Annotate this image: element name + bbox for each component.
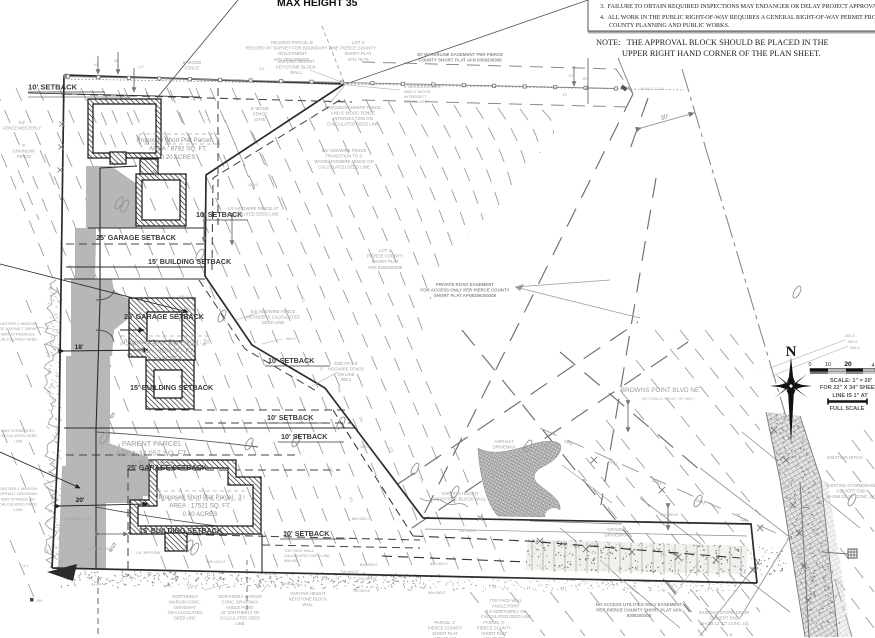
svg-text:188.9': 188.9' [360,445,371,449]
svg-text:10' SETBACK: 10' SETBACK [268,356,315,365]
svg-text:5.5' HOGWIRE FENCE ATCALCULATE: 5.5' HOGWIRE FENCE ATCALCULATED DEED LIN… [227,206,279,217]
svg-text:TW=399.8': TW=399.8' [352,589,371,593]
svg-text:353.6: 353.6 [848,340,858,344]
svg-text:15' BUILDING SETBACK: 15' BUILDING SETBACK [148,257,232,266]
svg-text:389.5': 389.5' [183,307,194,311]
svg-text:8W=393.2': 8W=393.2' [428,591,446,595]
svg-text:±08'=413.0': ±08'=413.0' [206,560,226,564]
svg-text:10: 10 [825,362,831,368]
svg-text:15' BUILDING SETBACK: 15' BUILDING SETBACK [130,383,214,392]
svg-text:353.3': 353.3' [845,334,856,338]
svg-text:10' SETBACK: 10' SETBACK [281,432,328,441]
svg-text:EXISTING DITCH: EXISTING DITCH [827,455,862,460]
svg-text:18': 18' [75,344,84,351]
svg-text:25' GARAGE SETBACK: 25' GARAGE SETBACK [96,233,177,242]
svg-text:10' SETBACK: 10' SETBACK [28,83,78,92]
svg-text:TW=411.8': TW=411.8' [280,582,298,586]
svg-text:SCALE: 1" = 20': SCALE: 1" = 20' [830,378,873,384]
svg-text:20: 20 [844,361,852,368]
svg-text:BROWNS POINT BLVD NE: BROWNS POINT BLVD NE [621,387,700,394]
svg-text:354.2': 354.2' [850,346,861,350]
svg-text:5.5' HOGWIRE FENCETRANSITION T: 5.5' HOGWIRE FENCETRANSITION TO 6'WOOD/H… [314,148,373,170]
svg-text:10': 10' [94,63,99,67]
svg-text:2.0': 2.0' [259,67,265,71]
svg-text:TW=393.8': TW=393.8' [358,577,377,581]
svg-text:390.0': 390.0' [286,337,297,341]
svg-text:7W=399.8': 7W=399.8' [660,513,678,517]
svg-text:GRAVELDRIVEWAY: GRAVELDRIVEWAY [605,527,628,538]
svg-text:8W=393.0': 8W=393.0' [360,563,378,567]
svg-text:10': 10' [569,74,574,78]
svg-text:TW=401.5': TW=401.5' [340,570,359,574]
svg-text:8W=392.9': 8W=392.9' [430,562,448,566]
svg-text:FOR 22" X 34" SHEET: FOR 22" X 34" SHEET [820,385,875,391]
svg-text:188.9': 188.9' [248,183,259,187]
svg-text:(60' PUBLIC RIGHT OF WAY): (60' PUBLIC RIGHT OF WAY) [641,396,695,401]
svg-text:10' SETBACK: 10' SETBACK [283,529,330,538]
svg-text:19+00.5 1.2 W: 19+00.5 1.2 W [640,87,664,91]
svg-text:20' WATERLINE EASEMENT PER PIE: 20' WATERLINE EASEMENT PER PIERCECOUNTY … [417,52,503,63]
svg-text:199: 199 [36,599,42,603]
svg-text:1.1': 1.1' [138,65,144,69]
svg-text:ASPHALTDRIVEWAY: ASPHALTDRIVEWAY [493,439,516,450]
svg-text:20': 20' [583,77,588,81]
svg-text:389.5: 389.5 [178,295,188,299]
svg-text:6.1: 6.1 [23,564,28,568]
svg-text:MAX HEIGHT 35: MAX HEIGHT 35 [277,0,358,9]
svg-text:6' WOOD/HOGWIRE FENCEAND 6' WO: 6' WOOD/HOGWIRE FENCEAND 6' WOOD FENCEIN… [325,105,381,127]
svg-text:8W=392.2: 8W=392.2 [352,517,369,521]
svg-text:15' BUILDING SETBACK: 15' BUILDING SETBACK [139,526,223,535]
svg-text:25' GARAGE SETBACK: 25' GARAGE SETBACK [127,463,208,472]
svg-text:25' GARAGE SETBACK: 25' GARAGE SETBACK [124,312,205,321]
svg-text:10': 10' [563,93,568,97]
svg-text:4: 4 [872,363,875,369]
svg-text:10' SETBACK: 10' SETBACK [267,413,314,422]
svg-text:EASTERLY MARGINOF ASPHALT DRIV: EASTERLY MARGINOF ASPHALT DRIVEWAY STRAD… [0,321,37,342]
svg-text:FULL SCALE: FULL SCALE [830,406,865,412]
svg-text:20': 20' [736,513,741,517]
svg-text:JUNIPER ROW: JUNIPER ROW [65,517,92,521]
svg-text:20': 20' [114,59,119,63]
svg-text:20': 20' [76,497,85,504]
svg-text:3.8' JPR ROW: 3.8' JPR ROW [136,551,161,555]
svg-text:6' WOODFENCE: 6' WOODFENCE [183,60,202,71]
svg-text:LINE IS 1" AT: LINE IS 1" AT [832,393,868,399]
svg-text:N: N [786,344,797,360]
svg-text:0: 0 [809,362,812,368]
svg-text:JUNIPER ROW: JUNIPER ROW [87,547,114,551]
svg-text:TW=396.8': TW=396.8' [458,529,477,533]
